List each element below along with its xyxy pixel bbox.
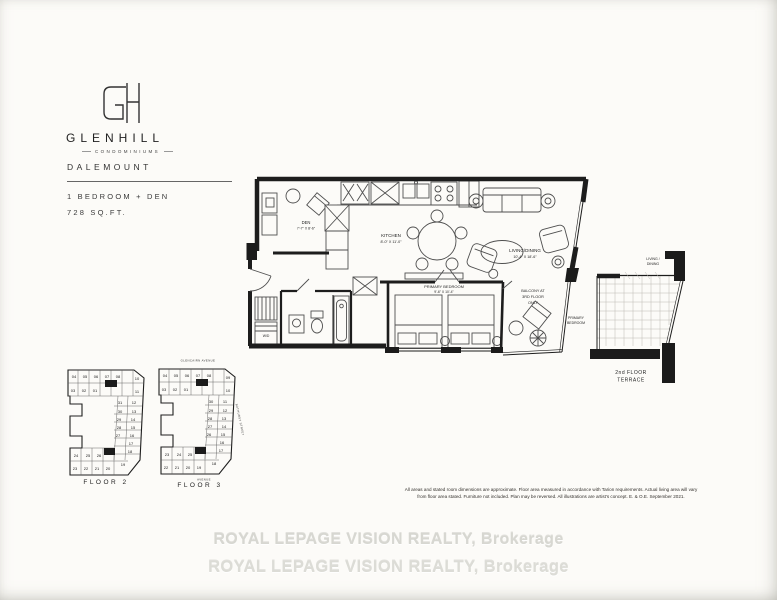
- svg-text:20: 20: [186, 465, 191, 470]
- svg-text:31: 31: [118, 400, 123, 405]
- disclaimer-line2: from floor area stated. Furniture not in…: [399, 494, 703, 501]
- terrace-label: TERRACE: [617, 378, 645, 384]
- svg-text:03: 03: [162, 387, 167, 392]
- terrace-label: 2nd FLOOR: [615, 370, 646, 376]
- den-desk-icon: [262, 193, 277, 235]
- svg-text:14: 14: [131, 417, 136, 422]
- disclaimer-text: All areas and stated room dimensions are…: [399, 487, 703, 500]
- svg-text:10: 10: [226, 388, 231, 393]
- svg-text:17: 17: [129, 441, 134, 446]
- brand-tagline-text: CONDOMINIUMS: [95, 149, 160, 154]
- terrace-adjacent-living-label: LIVING /: [646, 257, 659, 261]
- svg-text:26: 26: [207, 432, 212, 437]
- svg-text:01: 01: [184, 387, 189, 392]
- room-label-laundry: W/D: [263, 334, 270, 338]
- svg-text:18: 18: [212, 461, 217, 466]
- svg-text:27: 27: [208, 424, 213, 429]
- tagline-left-dash: [82, 151, 91, 152]
- unit-type: 1 BEDROOM + DEN: [67, 192, 239, 201]
- svg-text:27: 27: [116, 433, 121, 438]
- svg-text:12: 12: [223, 408, 228, 413]
- keyplan-floor3: GLENCAIRN AVENUE BATHURST STREET AVENUE …: [152, 358, 244, 482]
- disclaimer-line1: All areas and stated room dimensions are…: [399, 487, 703, 494]
- brand-name: GLENHILL: [66, 131, 241, 145]
- sofa-icon: [469, 188, 555, 212]
- svg-text:09: 09: [226, 375, 231, 380]
- room-dims-bedroom: 9'-6" X 10'-4": [434, 290, 454, 294]
- street-label-right: BATHURST STREET: [235, 403, 244, 436]
- svg-text:22: 22: [84, 466, 89, 471]
- svg-text:13: 13: [132, 409, 137, 414]
- terrace-adjacent-bedroom-label: PRIMARY: [568, 316, 585, 320]
- svg-text:30: 30: [118, 409, 123, 414]
- street-label-top: GLENCAIRN AVENUE: [181, 359, 216, 363]
- room-label-balcony: 3RD FLOOR: [522, 295, 544, 299]
- brokerage-watermark: ROYAL LEPAGE VISION REALTY, Brokerage: [0, 558, 777, 577]
- reading-chair-icon: [464, 242, 505, 279]
- svg-text:16: 16: [130, 433, 135, 438]
- floorplan-page: GLENHILL CONDOMINIUMS DALEMOUNT 1 BEDROO…: [0, 0, 777, 600]
- svg-text:28: 28: [117, 425, 122, 430]
- svg-text:07: 07: [105, 374, 110, 379]
- svg-text:17: 17: [219, 448, 224, 453]
- svg-text:28: 28: [208, 416, 213, 421]
- svg-text:14: 14: [222, 424, 227, 429]
- room-label-balcony: BALCONY AT: [521, 289, 545, 293]
- svg-text:06: 06: [94, 374, 99, 379]
- svg-text:23: 23: [165, 452, 170, 457]
- kitchen-appliances-icon: [337, 181, 479, 207]
- svg-text:12: 12: [132, 400, 137, 405]
- floor3-label: FLOOR 3: [156, 482, 244, 489]
- svg-text:04: 04: [163, 373, 168, 378]
- balcony-lounge-icon: [523, 301, 551, 329]
- room-dims-den: 7'-7" X 8'-6": [297, 227, 316, 231]
- svg-text:21: 21: [95, 466, 100, 471]
- bed-icon: [448, 295, 494, 348]
- bathroom-fixtures-icon: [289, 296, 349, 345]
- balcony-chair-icon: [530, 330, 546, 346]
- svg-text:04: 04: [72, 374, 77, 379]
- room-label-kitchen: KITCHEN: [381, 233, 401, 238]
- svg-text:05: 05: [174, 373, 179, 378]
- svg-text:26: 26: [97, 453, 102, 458]
- building-core: [104, 448, 115, 455]
- svg-text:08: 08: [207, 373, 212, 378]
- armchair-icon: [538, 224, 569, 254]
- building-core: [195, 447, 206, 454]
- main-floorplan: DEN 7'-7" X 8'-6" KITCHEN 8'-0" X 11'-0"…: [245, 165, 695, 400]
- den-chair-icon: [286, 189, 300, 203]
- svg-text:24: 24: [74, 453, 79, 458]
- room-label-balcony: ONLY: [528, 301, 539, 305]
- svg-text:03: 03: [71, 388, 76, 393]
- unit-name: DALEMOUNT: [67, 162, 239, 172]
- svg-text:25: 25: [86, 453, 91, 458]
- svg-text:08: 08: [116, 374, 121, 379]
- brand-tagline: CONDOMINIUMS: [82, 149, 241, 154]
- svg-text:21: 21: [175, 465, 180, 470]
- highlighted-unit: [196, 379, 208, 386]
- tagline-right-dash: [164, 151, 173, 152]
- svg-text:15: 15: [221, 432, 226, 437]
- balcony-table-icon: [509, 321, 523, 335]
- svg-text:13: 13: [222, 416, 227, 421]
- terrace-detail: LIVING / DINING PRIMARY BEDROOM 2nd FLOO…: [567, 251, 685, 384]
- svg-text:07: 07: [196, 373, 201, 378]
- floor2-label: FLOOR 2: [62, 479, 150, 486]
- brand-block: GLENHILL CONDOMINIUMS: [66, 80, 241, 154]
- svg-text:18: 18: [128, 449, 133, 454]
- room-label-den: DEN: [302, 220, 311, 225]
- room-label-living: LIVING/DINING: [509, 248, 541, 253]
- highlighted-unit: [105, 380, 117, 387]
- brokerage-watermark: ROYAL LEPAGE VISION REALTY, Brokerage: [0, 531, 777, 549]
- svg-text:02: 02: [173, 387, 178, 392]
- svg-text:15: 15: [131, 425, 136, 430]
- room-dims-kitchen: 8'-0" X 11'-0": [381, 240, 403, 244]
- svg-text:29: 29: [117, 417, 122, 422]
- svg-text:19: 19: [197, 465, 202, 470]
- unit-area: 728 SQ.FT.: [67, 208, 239, 217]
- room-label-bedroom: PRIMARY BEDROOM: [424, 284, 464, 289]
- dining-table-icon: [407, 210, 467, 270]
- svg-text:02: 02: [82, 388, 87, 393]
- divider-rule: [67, 181, 232, 182]
- svg-text:19: 19: [121, 462, 126, 467]
- terrace-adjacent-living-label: DINING: [647, 262, 660, 266]
- svg-text:29: 29: [209, 408, 214, 413]
- room-dims-living: 10'-4" X 18'-6": [513, 255, 537, 259]
- svg-text:25: 25: [188, 452, 193, 457]
- svg-text:06: 06: [185, 373, 190, 378]
- bed-icon: [395, 295, 442, 348]
- svg-text:24: 24: [177, 452, 182, 457]
- svg-text:16: 16: [220, 440, 225, 445]
- svg-text:01: 01: [93, 388, 98, 393]
- svg-text:23: 23: [73, 466, 78, 471]
- svg-text:05: 05: [83, 374, 88, 379]
- terrace-tile-grid: [597, 275, 679, 346]
- svg-text:30: 30: [209, 399, 214, 404]
- street-label-bottom: AVENUE: [197, 478, 211, 482]
- svg-text:22: 22: [164, 465, 169, 470]
- keyplan-floor2: 04 05 06 07 08 10 03 02 01 11 31 12 30 1…: [62, 364, 150, 482]
- keyplan-building: 04 05 06 07 08 09 03 02 01 10 30 11 29 1…: [159, 369, 235, 474]
- pantry-closet-icon: [325, 205, 349, 269]
- svg-text:10: 10: [135, 376, 140, 381]
- terrace-adjacent-bedroom-label: BEDROOM: [567, 321, 585, 325]
- svg-text:20: 20: [106, 466, 111, 471]
- glenhill-monogram-logo: [96, 80, 142, 126]
- side-table-icon: [552, 256, 564, 268]
- unit-info-block: DALEMOUNT 1 BEDROOM + DEN 728 SQ.FT.: [67, 162, 239, 217]
